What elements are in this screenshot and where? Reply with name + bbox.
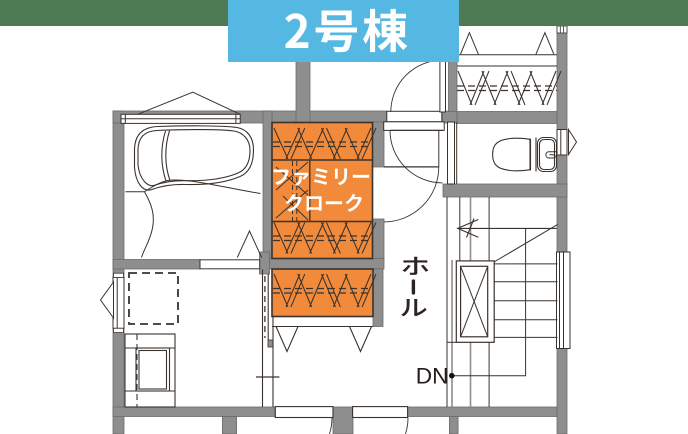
- svg-text:DN: DN: [416, 364, 449, 389]
